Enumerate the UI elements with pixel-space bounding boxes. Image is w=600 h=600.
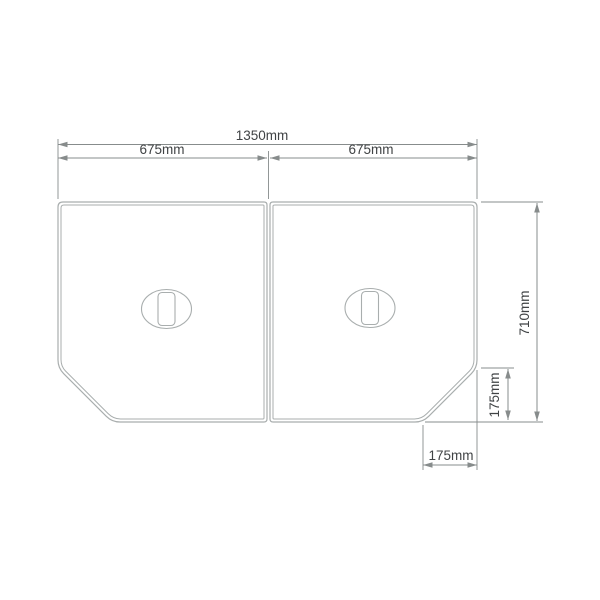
left-panel	[58, 202, 267, 422]
right-panel-handle-icon	[345, 289, 395, 328]
lid-panels	[58, 202, 477, 422]
dim-right-panel-width-label: 675mm	[348, 142, 393, 157]
dim-overall-depth: 710mm	[517, 203, 537, 421]
dim-total-width: 1350mm	[58, 128, 477, 145]
dim-corner-cut-depth-label: 175mm	[487, 372, 502, 417]
right-panel-inner-outline	[273, 205, 474, 419]
left-panel-handle-icon	[142, 290, 192, 329]
dim-overall-depth-label: 710mm	[517, 290, 532, 335]
dim-total-width-label: 1350mm	[236, 128, 289, 143]
bathtub-lid-technical-drawing: 1350mm 675mm 675mm 710mm 175mm 175mm	[0, 0, 600, 600]
dim-corner-cut-depth: 175mm	[487, 369, 508, 420]
dimension-drawing-canvas: 1350mm 675mm 675mm 710mm 175mm 175mm	[0, 0, 600, 600]
right-panel	[270, 202, 477, 422]
dim-left-panel-width-label: 675mm	[139, 142, 184, 157]
extension-lines	[58, 139, 543, 470]
dim-corner-cut-width-label: 175mm	[428, 448, 473, 463]
dim-corner-cut-width: 175mm	[423, 448, 477, 465]
left-panel-inner-outline	[61, 205, 264, 419]
